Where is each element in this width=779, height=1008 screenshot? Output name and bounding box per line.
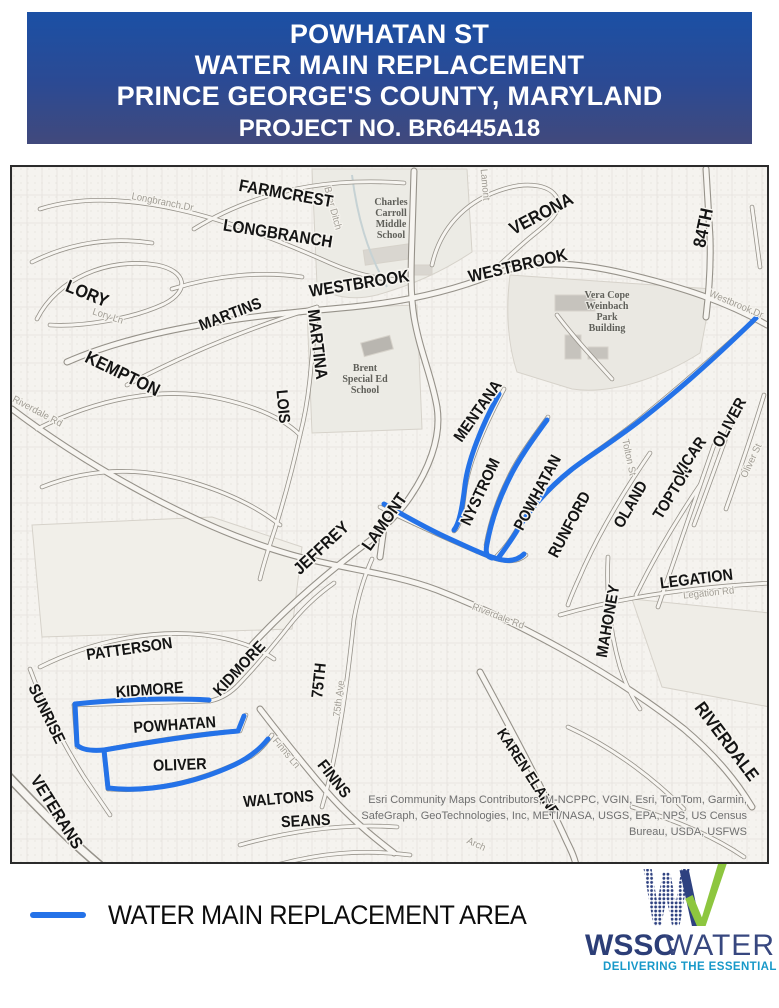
legend-water-main-line: [30, 912, 86, 918]
street-label: OLIVER: [153, 755, 207, 775]
legend-label: WATER MAIN REPLACEMENT AREA: [108, 900, 526, 931]
attribution-line: SafeGraph, GeoTechnologies, Inc, METI/NA…: [361, 810, 747, 822]
street-label: SEANS: [281, 811, 331, 831]
street-label: LOIS: [272, 389, 293, 424]
title-line-1: POWHATAN ST: [27, 19, 752, 50]
logo-mark: [644, 864, 727, 926]
title-line-2: WATER MAIN REPLACEMENT: [27, 50, 752, 81]
logo-tagline: DELIVERING THE ESSENTIAL: [603, 961, 777, 973]
attribution-line: Esri Community Maps Contributors, M-NCPP…: [368, 794, 747, 806]
header-banner: POWHATAN ST WATER MAIN REPLACEMENT PRINC…: [27, 12, 752, 144]
legend: WATER MAIN REPLACEMENT AREA: [30, 895, 570, 935]
title-line-3: PRINCE GEORGE'S COUNTY, MARYLAND: [27, 81, 752, 112]
project-map-flyer: { "header": { "line1": "POWHATAN ST", "l…: [0, 0, 779, 1008]
attribution-line: Bureau, USDA, USFWS: [629, 826, 747, 838]
logo-text-water: WATER: [665, 929, 775, 962]
street-map: Longbranch DrBrier DitchLamontWestbrook …: [12, 167, 767, 862]
logo-text-wssc: WSSC: [585, 929, 675, 962]
area-label: CharlesCarrollMiddleSchool: [374, 197, 407, 241]
street-label: 75TH: [309, 662, 330, 699]
wssc-water-logo: WSSC WATER DELIVERING THE ESSENTIAL: [583, 862, 777, 980]
wssc-logo-svg: WSSC WATER DELIVERING THE ESSENTIAL: [583, 862, 777, 980]
project-number: PROJECT NO. BR6445A18: [27, 114, 752, 144]
map-frame: Longbranch DrBrier DitchLamontWestbrook …: [10, 165, 769, 864]
